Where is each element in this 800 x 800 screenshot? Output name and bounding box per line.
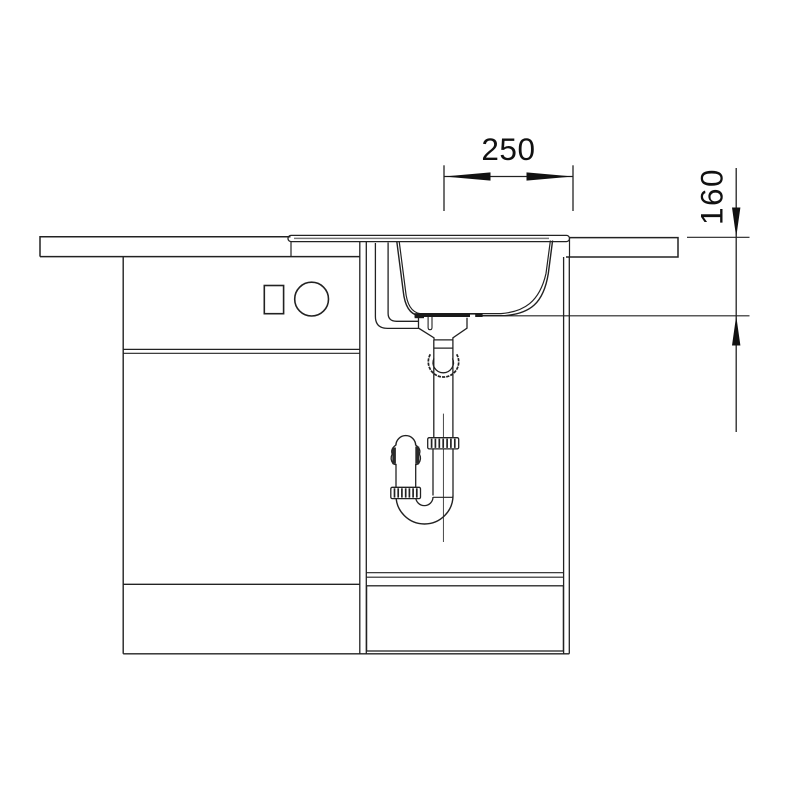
svg-text:250: 250 (481, 131, 535, 167)
svg-text:160: 160 (693, 168, 729, 225)
